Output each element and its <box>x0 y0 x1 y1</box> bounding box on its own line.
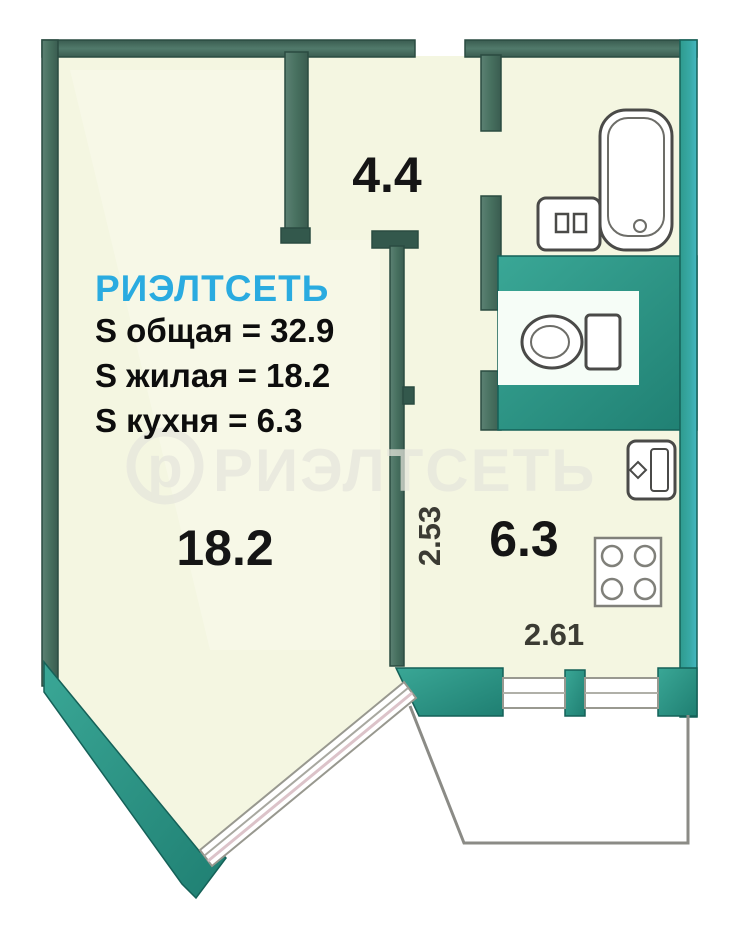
kitchen-sink-bowl <box>651 449 668 491</box>
legend-total-area: S общая = 32.9 <box>95 312 334 349</box>
floorplan-page: р РИЭЛТСЕТЬ РИЭЛТСЕТЬ S общая = 32.9 S ж… <box>0 0 738 932</box>
kitchen-window-mullion <box>565 670 585 716</box>
left-wall <box>42 40 58 686</box>
living-room-area-label: 18.2 <box>176 520 273 576</box>
top-wall-left <box>42 40 415 57</box>
kitchen-area-label: 6.3 <box>489 511 559 567</box>
legend-kitchen-area: S кухня = 6.3 <box>95 402 302 439</box>
watermark-text: РИЭЛТСЕТЬ <box>213 437 596 504</box>
hall-living-wall-foot <box>281 228 310 243</box>
toilet-tank <box>586 315 620 369</box>
watermark-logo-letter: р <box>147 435 182 500</box>
living-kitchen-wall-nub <box>403 387 414 404</box>
hall-bath-wall-upper <box>481 55 501 131</box>
brand-title: РИЭЛТСЕТЬ <box>95 268 329 309</box>
hall-area-label: 4.4 <box>352 147 422 203</box>
sink-tap-left <box>556 214 568 232</box>
legend-living-area: S жилая = 18.2 <box>95 357 330 394</box>
sink-tap-right <box>574 214 586 232</box>
kitchen-width-dimension: 2.61 <box>524 617 584 652</box>
floorplan-svg: р РИЭЛТСЕТЬ РИЭЛТСЕТЬ S общая = 32.9 S ж… <box>0 0 738 932</box>
right-wall <box>680 40 697 717</box>
kitchen-window-pier-right <box>658 668 697 716</box>
hall-living-divider-wall <box>285 52 308 230</box>
kitchen-depth-dimension: 2.53 <box>412 506 447 566</box>
